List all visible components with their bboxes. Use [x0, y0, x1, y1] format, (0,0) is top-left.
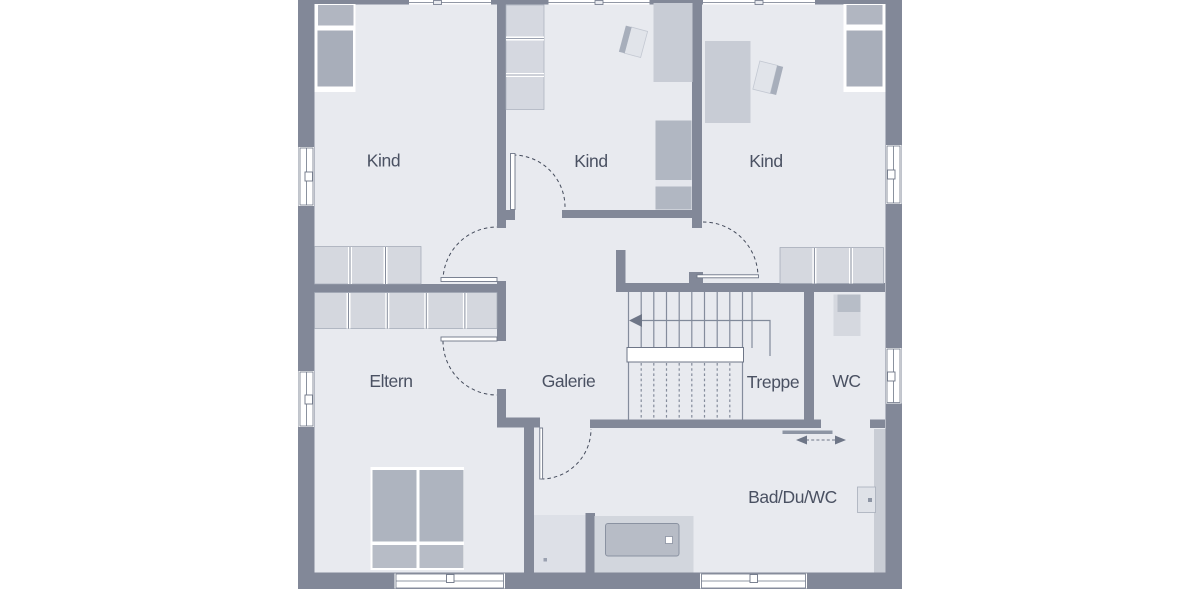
svg-text:Treppe: Treppe [747, 372, 799, 392]
svg-text:Eltern: Eltern [369, 371, 412, 391]
svg-text:Kind: Kind [574, 151, 607, 171]
svg-text:Kind: Kind [367, 151, 400, 171]
svg-text:Kind: Kind [749, 151, 782, 171]
svg-text:Galerie: Galerie [542, 371, 596, 391]
svg-text:WC: WC [832, 371, 860, 391]
svg-text:Bad/Du/WC: Bad/Du/WC [748, 487, 837, 507]
